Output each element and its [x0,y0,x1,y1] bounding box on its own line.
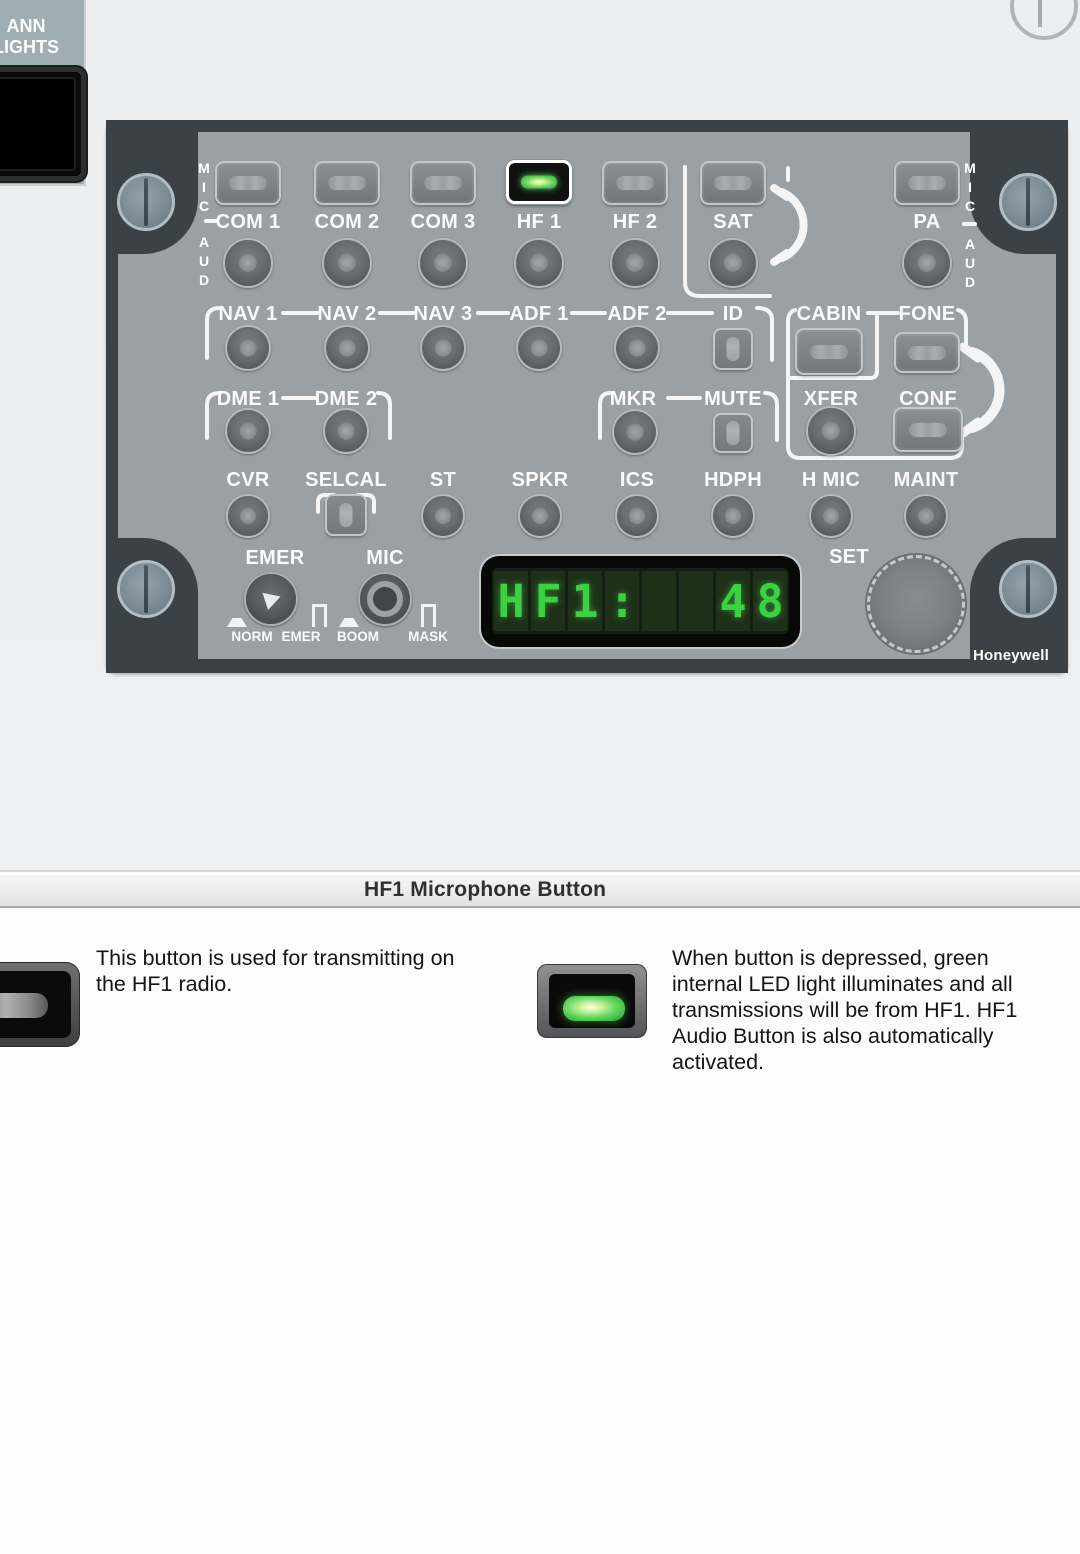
hf1-button-unlit-image [0,962,80,1047]
pa-mic-led [908,176,946,190]
section-title: HF1 Microphone Button [364,878,606,902]
maint-knob[interactable] [904,494,948,538]
ics-label: ICS [620,469,654,492]
nav1-knob[interactable] [225,325,271,371]
mute-button[interactable] [713,413,753,453]
emer-selector-pointer [263,588,284,610]
fone-label: FONE [899,303,956,326]
st-label: ST [430,469,456,492]
hmic-knob[interactable] [809,494,853,538]
norm-position-label: NORM [231,629,272,644]
hf2-mic-led [616,176,654,190]
set-label: SET [829,546,869,569]
hf1-mic-led [521,176,557,189]
display-cell: 1 [568,571,602,631]
mic-rail-right-label: MIC [963,160,977,217]
st-knob[interactable] [421,494,465,538]
nav2-knob[interactable] [324,325,370,371]
section-divider-line [0,870,1080,872]
mic-rail-left-label: MIC [197,160,211,217]
ics-knob[interactable] [615,494,659,538]
nav3-label: NAV 3 [414,303,473,326]
display-cell: 4 [716,571,750,631]
mkr-knob[interactable] [612,409,658,455]
adf2-label: ADF 2 [607,303,666,326]
com2-mic-button[interactable] [314,161,380,205]
cvr-label: CVR [226,469,269,492]
com1-mic-led [229,176,267,190]
mic-aud-divider-right [962,222,977,226]
emer-label: EMER [246,547,305,570]
display-cell [642,571,676,631]
sat-label: SAT [713,211,752,234]
fone-button-led [908,346,946,360]
fone-handset-icon [963,347,1000,433]
boom-position-label: BOOM [337,629,379,644]
caption-left-text: This button is used for transmitting on … [96,945,496,997]
cabin-button[interactable] [795,328,863,375]
display-cell [679,571,713,631]
mute-button-led [727,421,740,445]
mkr-label: MKR [610,388,656,411]
hf1-button-lit-image [537,964,647,1038]
mask-position-marker-icon [421,604,436,627]
com2-audio-knob[interactable] [322,238,372,288]
ann-lights-button[interactable] [0,67,86,181]
pa-audio-knob[interactable] [902,238,952,288]
ann-lights-button-face [0,77,76,171]
cabin-button-led [810,345,848,359]
maint-label: MAINT [894,469,959,492]
mute-label: MUTE [704,388,762,411]
hf1-button-unlit-bar [0,993,48,1018]
hmic-label: H MIC [802,469,860,492]
hf2-audio-knob[interactable] [610,238,660,288]
sat-mic-led [714,176,752,190]
dme2-knob[interactable] [323,408,369,454]
sat-audio-knob[interactable] [708,238,758,288]
hf2-mic-button[interactable] [602,161,668,205]
hf1-label: HF 1 [517,211,562,234]
id-label: ID [723,303,744,326]
adf1-label: ADF 1 [509,303,568,326]
pa-label: PA [914,211,941,234]
sat-handset-icon [774,188,804,262]
set-knob[interactable] [867,555,965,653]
mic-label: MIC [366,547,404,570]
mic-selector-center [367,581,403,617]
pa-mic-button[interactable] [894,161,960,205]
emer-selector-knob[interactable] [244,572,298,626]
frequency-display-screen: H F 1 : 4 8 [492,568,789,634]
aud-rail-left-label: AUD [197,234,211,291]
com3-mic-button[interactable] [410,161,476,205]
display-cell: H [494,571,528,631]
com3-audio-knob[interactable] [418,238,468,288]
adf1-knob[interactable] [516,325,562,371]
adf2-knob[interactable] [614,325,660,371]
xfer-knob[interactable] [806,406,856,456]
hdph-knob[interactable] [711,494,755,538]
mask-position-label: MASK [408,629,448,644]
fone-button[interactable] [894,332,960,373]
emer-position-marker-icon [312,604,327,627]
hf1-button-lit-led [563,996,625,1021]
nav1-label: NAV 1 [219,303,278,326]
info-icon-stem [1038,0,1042,27]
com2-label: COM 2 [315,211,380,234]
com3-mic-led [424,176,462,190]
hf1-audio-knob[interactable] [514,238,564,288]
com1-audio-knob[interactable] [223,238,273,288]
conf-button-led [909,423,947,437]
selcal-button-led [340,503,353,527]
sat-mic-button[interactable] [700,161,766,205]
mic-selector-knob[interactable] [358,572,412,626]
nav2-label: NAV 2 [318,303,377,326]
selcal-button[interactable] [325,494,367,536]
hf2-label: HF 2 [613,211,658,234]
com1-mic-button[interactable] [215,161,281,205]
com3-label: COM 3 [411,211,476,234]
aud-rail-right-label: AUD [963,236,977,293]
cvr-knob[interactable] [226,494,270,538]
id-button-led [727,337,740,361]
selcal-label: SELCAL [305,469,387,492]
hf1-mic-button[interactable] [506,160,572,204]
ann-lights-label: ANN LIGHTS [0,16,84,58]
caption-right-text: When button is depressed, green internal… [672,945,1062,1075]
cabin-label: CABIN [797,303,862,326]
hdph-label: HDPH [704,469,762,492]
spkr-knob[interactable] [518,494,562,538]
conf-button[interactable] [893,407,963,452]
com1-label: COM 1 [216,211,281,234]
id-button[interactable] [713,328,753,370]
display-cell: : [605,571,639,631]
emer-position-label: EMER [281,629,320,644]
dme1-knob[interactable] [225,408,271,454]
com2-mic-led [328,176,366,190]
honeywell-logo: Honeywell [973,647,1049,664]
display-cell: F [531,571,565,631]
spkr-label: SPKR [512,469,569,492]
display-cell: 8 [753,571,787,631]
frequency-display: H F 1 : 4 8 [481,556,800,647]
nav3-knob[interactable] [420,325,466,371]
